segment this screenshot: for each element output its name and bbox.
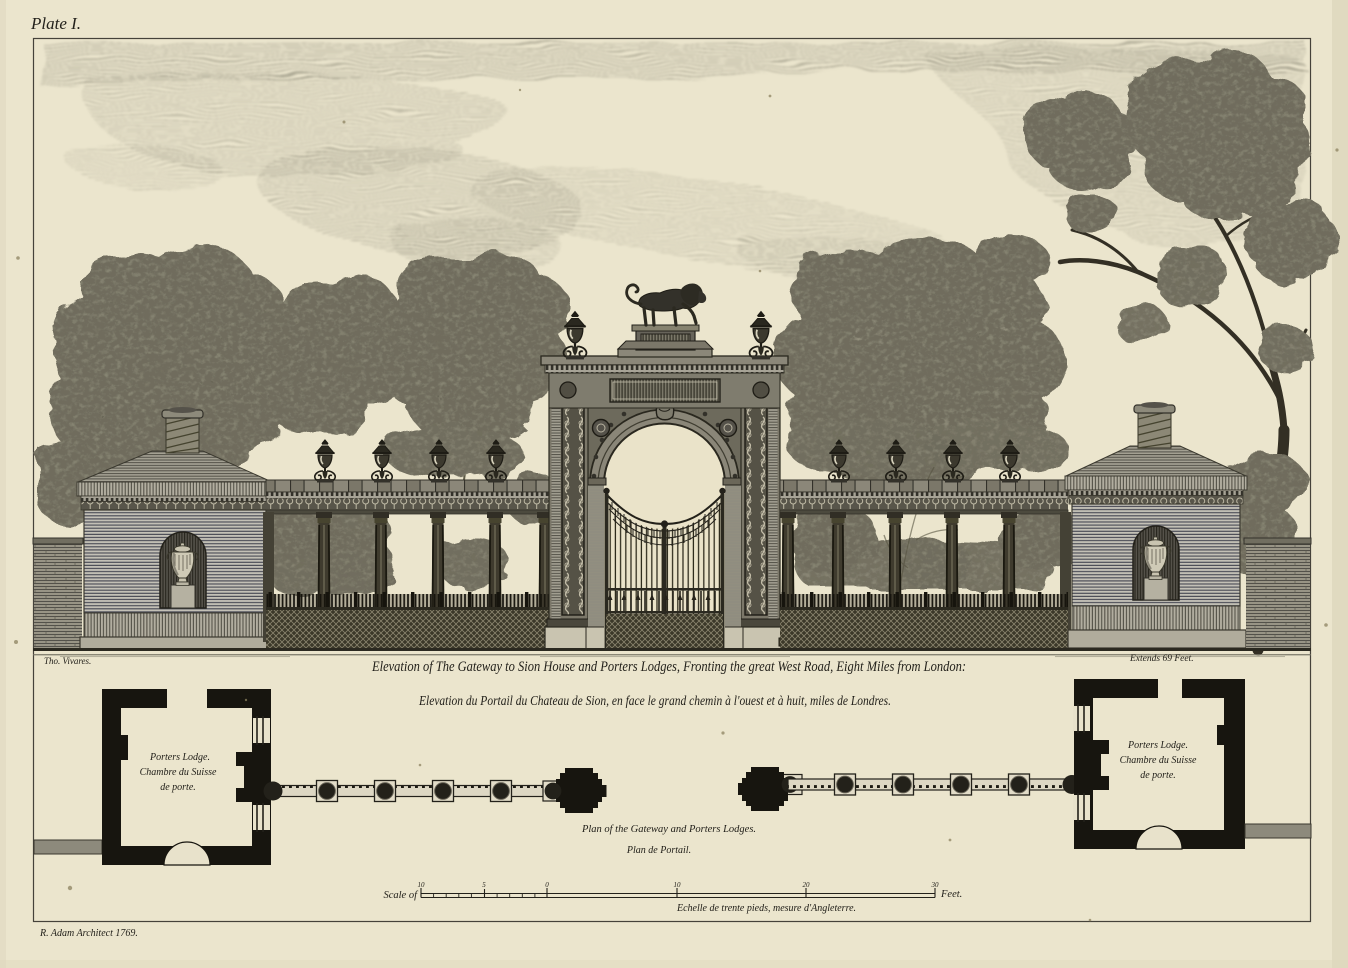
svg-text:Plate I.: Plate I. xyxy=(30,14,81,33)
svg-text:Extends 69 Feet.: Extends 69 Feet. xyxy=(1129,654,1194,664)
svg-text:Plan de Portail.: Plan de Portail. xyxy=(626,845,691,856)
svg-text:Chambre du Suisse: Chambre du Suisse xyxy=(1120,755,1197,766)
svg-text:R. Adam Architect 1769.: R. Adam Architect 1769. xyxy=(39,928,138,939)
svg-text:Feet.: Feet. xyxy=(940,889,962,900)
svg-text:Scale of: Scale of xyxy=(383,890,419,901)
svg-text:Elevation of The Gateway to Si: Elevation of The Gateway to Sion House a… xyxy=(371,659,966,675)
svg-text:de porte.: de porte. xyxy=(1140,770,1176,781)
svg-text:10: 10 xyxy=(418,881,426,889)
svg-text:30: 30 xyxy=(931,881,940,889)
svg-text:20: 20 xyxy=(803,881,811,889)
svg-text:10: 10 xyxy=(674,881,682,889)
svg-text:de porte.: de porte. xyxy=(160,782,196,793)
svg-text:Tho. Vivares.: Tho. Vivares. xyxy=(44,656,91,666)
svg-text:Chambre du Suisse: Chambre du Suisse xyxy=(140,767,217,778)
svg-text:Elevation du Portail du Chatea: Elevation du Portail du Chateau de Sion,… xyxy=(418,693,891,708)
svg-text:0: 0 xyxy=(545,881,549,889)
svg-text:Plan of the Gateway and Porter: Plan of the Gateway and Porters Lodges. xyxy=(581,824,756,835)
svg-text:Porters Lodge.: Porters Lodge. xyxy=(1127,740,1188,751)
svg-text:Echelle de trente pieds, mesur: Echelle de trente pieds, mesure d'Anglet… xyxy=(676,903,856,914)
svg-text:5: 5 xyxy=(482,881,486,889)
svg-text:Porters Lodge.: Porters Lodge. xyxy=(149,752,210,763)
